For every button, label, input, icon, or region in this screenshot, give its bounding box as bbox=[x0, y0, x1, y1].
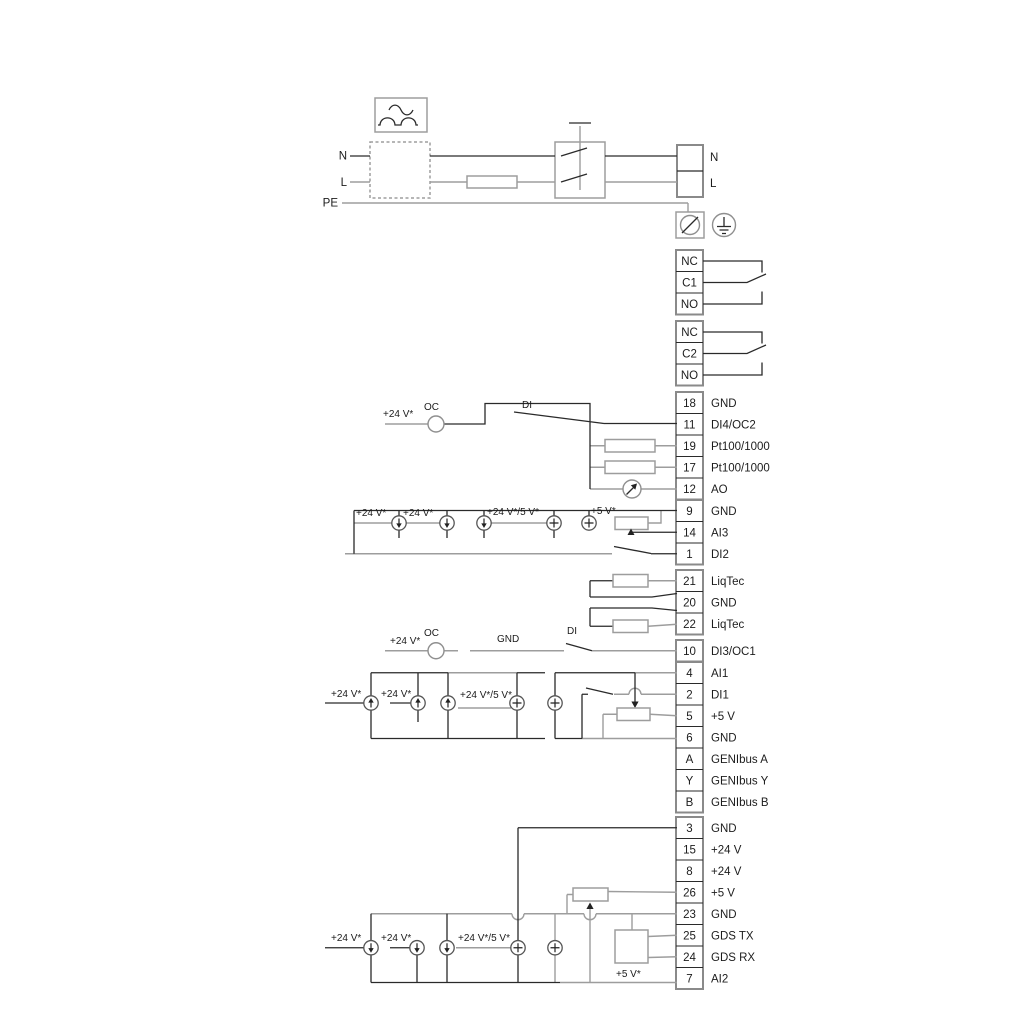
terminal-label: GENIbus B bbox=[711, 797, 769, 809]
terminal-number: 6 bbox=[686, 733, 692, 745]
label-plus24v-5v: +24 V*/5 V* bbox=[460, 690, 512, 701]
label-oc: OC bbox=[424, 628, 439, 639]
terminal-number: Y bbox=[686, 776, 694, 788]
potentiometer-ai1 bbox=[617, 708, 650, 721]
terminal-label: AI1 bbox=[711, 668, 728, 680]
label-oc: OC bbox=[424, 402, 439, 413]
terminal-number: 17 bbox=[683, 463, 696, 475]
terminal-number: 15 bbox=[683, 845, 696, 857]
relay-1-block: NC C1 NO bbox=[676, 250, 766, 315]
terminal-number: 11 bbox=[684, 420, 696, 432]
label-plus5v: +5 V* bbox=[591, 506, 616, 517]
terminal-label: GND bbox=[711, 733, 737, 745]
terminal-label: +5 V bbox=[711, 888, 735, 900]
terminal-number: 26 bbox=[683, 888, 696, 900]
terminal-label: +24 V bbox=[711, 845, 742, 857]
relay-1-no: NO bbox=[681, 299, 698, 311]
terminal-number: 23 bbox=[683, 909, 696, 921]
terminal-label: GND bbox=[711, 909, 737, 921]
terminal-label: LiqTec bbox=[711, 576, 744, 588]
terminal-label: DI4/OC2 bbox=[711, 420, 756, 432]
label-plus24v: +24 V* bbox=[381, 933, 411, 944]
label-gnd: GND bbox=[497, 634, 519, 645]
current-source-icon bbox=[440, 941, 454, 955]
ac-supply-symbol-box bbox=[375, 98, 427, 132]
terminal-number: 22 bbox=[683, 619, 696, 631]
label-di: DI bbox=[522, 400, 532, 411]
current-source-icon bbox=[364, 941, 378, 955]
terminal-number: 1 bbox=[686, 549, 692, 561]
terminal-label: GDS TX bbox=[711, 931, 754, 943]
relay-2-no: NO bbox=[681, 370, 698, 382]
terminal-number: 4 bbox=[686, 668, 693, 680]
liqtec-sensor-resistor-1 bbox=[613, 575, 648, 588]
wire-gray bbox=[648, 581, 677, 627]
terminal-number: 5 bbox=[686, 711, 692, 723]
terminal-number: 21 bbox=[683, 576, 696, 588]
terminal-label: DI2 bbox=[711, 549, 729, 561]
potentiometer-ai2 bbox=[573, 888, 608, 901]
terminal-number: 7 bbox=[686, 974, 692, 986]
voltage-source-icon bbox=[548, 696, 562, 710]
voltage-source-icon bbox=[547, 516, 561, 530]
pt100-resistor-2 bbox=[605, 461, 655, 474]
open-collector-icon bbox=[428, 643, 444, 659]
relay-2-common: C2 bbox=[682, 349, 697, 361]
terminal-label: +24 V bbox=[711, 866, 742, 878]
terminal-label: +5 V bbox=[711, 711, 735, 723]
terminal-label: GND bbox=[711, 823, 737, 835]
terminal-number: 18 bbox=[683, 398, 696, 410]
label-plus24v-5v: +24 V*/5 V* bbox=[458, 933, 510, 944]
label-di: DI bbox=[567, 626, 577, 637]
terminal-number: 10 bbox=[683, 646, 696, 658]
terminal-label: GND bbox=[711, 598, 737, 610]
relay-2-contact-wires bbox=[703, 332, 766, 375]
terminal-number: 20 bbox=[683, 598, 696, 610]
terminal-label: LiqTec bbox=[711, 619, 744, 631]
terminal-number: B bbox=[686, 797, 694, 809]
terminal-label: AO bbox=[711, 484, 728, 496]
relay-1-nc: NC bbox=[681, 256, 698, 268]
relay-1-contact-wires bbox=[703, 261, 766, 304]
terminal-number: 12 bbox=[683, 484, 696, 496]
io-strip-18-12: 18 11 19 17 12 GND DI4/OC2 Pt100/1000 Pt… bbox=[383, 392, 770, 500]
wire-gray bbox=[385, 424, 677, 489]
wiring-diagram-page: N L PE N L NC C1 NO NC C2 NO 18 11 19 17… bbox=[0, 0, 1024, 1024]
label-plus24v: +24 V* bbox=[331, 933, 361, 944]
current-source-icon bbox=[410, 941, 424, 955]
potentiometer-ai3 bbox=[615, 517, 648, 530]
liqtec-sensor-resistor-2 bbox=[613, 620, 648, 633]
label-n-out: N bbox=[710, 152, 718, 164]
label-l-out: L bbox=[710, 178, 717, 190]
io-strip-3-7: 3 15 8 26 23 25 24 7 GND +24 V +24 V +5 … bbox=[325, 817, 755, 989]
terminal-number: 14 bbox=[683, 528, 696, 540]
pt100-resistor-1 bbox=[605, 440, 655, 453]
label-plus24v: +24 V* bbox=[331, 689, 361, 700]
liqtec-strip: 21 20 22 LiqTec GND LiqTec bbox=[590, 570, 744, 635]
terminal-number: 2 bbox=[686, 690, 692, 702]
label-l-in: L bbox=[341, 177, 348, 189]
terminal-label: AI3 bbox=[711, 528, 728, 540]
label-plus24v: +24 V* bbox=[403, 508, 433, 519]
terminal-number: 3 bbox=[686, 823, 692, 835]
di-switch-arm bbox=[566, 644, 592, 651]
terminal-label: GENIbus Y bbox=[711, 776, 769, 788]
terminal-number: 8 bbox=[686, 866, 692, 878]
terminal-number: 9 bbox=[686, 506, 692, 518]
label-plus24v: +24 V* bbox=[390, 636, 420, 647]
current-source-icon bbox=[440, 516, 454, 530]
label-n-in: N bbox=[339, 151, 347, 163]
label-plus5v: +5 V* bbox=[616, 969, 641, 980]
label-plus24v: +24 V* bbox=[356, 508, 386, 519]
wire-gray bbox=[448, 673, 677, 739]
label-pe: PE bbox=[323, 198, 339, 210]
io-strip-4-b: 4 2 5 6 A Y B AI1 DI1 +5 V GND GENIbus A… bbox=[325, 662, 769, 813]
relay-2-nc: NC bbox=[681, 327, 698, 339]
voltage-source-icon bbox=[582, 516, 596, 530]
current-source-icon bbox=[441, 696, 455, 710]
relay-2-block: NC C2 NO bbox=[676, 321, 766, 386]
terminal-label: GND bbox=[711, 398, 737, 410]
terminal-label: AI2 bbox=[711, 974, 728, 986]
open-collector-icon bbox=[428, 416, 444, 432]
terminal-number: A bbox=[686, 754, 694, 766]
label-plus24v-5v: +24 V*/5 V* bbox=[487, 507, 539, 518]
io-strip-9-1: 9 14 1 GND AI3 DI2 +24 V* +24 V* +24 V*/… bbox=[345, 500, 737, 565]
terminal-label: Pt100/1000 bbox=[711, 441, 770, 453]
label-plus24v: +24 V* bbox=[383, 409, 413, 420]
voltage-source-icon bbox=[548, 941, 562, 955]
current-source-icon bbox=[411, 696, 425, 710]
terminal-label: GENIbus A bbox=[711, 754, 768, 766]
wiper-arrow-down bbox=[631, 702, 638, 709]
fuse bbox=[467, 176, 517, 188]
terminal-label: GDS RX bbox=[711, 952, 755, 964]
terminal-label: Pt100/1000 bbox=[711, 463, 770, 475]
gds-sensor-box bbox=[615, 930, 648, 963]
terminal-number: 19 bbox=[683, 441, 696, 453]
wiper-arrow-up bbox=[586, 903, 593, 910]
pump-wiring-schematic: N L PE N L NC C1 NO NC C2 NO 18 11 19 17… bbox=[0, 0, 1024, 1024]
terminal-number: 25 bbox=[683, 931, 696, 943]
terminal-label: DI3/OC1 bbox=[711, 646, 756, 658]
terminal-label: GND bbox=[711, 506, 737, 518]
terminal-label: DI1 bbox=[711, 690, 729, 702]
terminal-number: 24 bbox=[683, 952, 696, 964]
voltage-source-icon bbox=[511, 941, 525, 955]
mains-power-section: N L PE N L bbox=[323, 98, 736, 238]
label-plus24v: +24 V* bbox=[381, 689, 411, 700]
external-supply-dashed-box bbox=[370, 142, 430, 198]
relay-1-common: C1 bbox=[682, 278, 697, 290]
current-source-icon bbox=[364, 696, 378, 710]
